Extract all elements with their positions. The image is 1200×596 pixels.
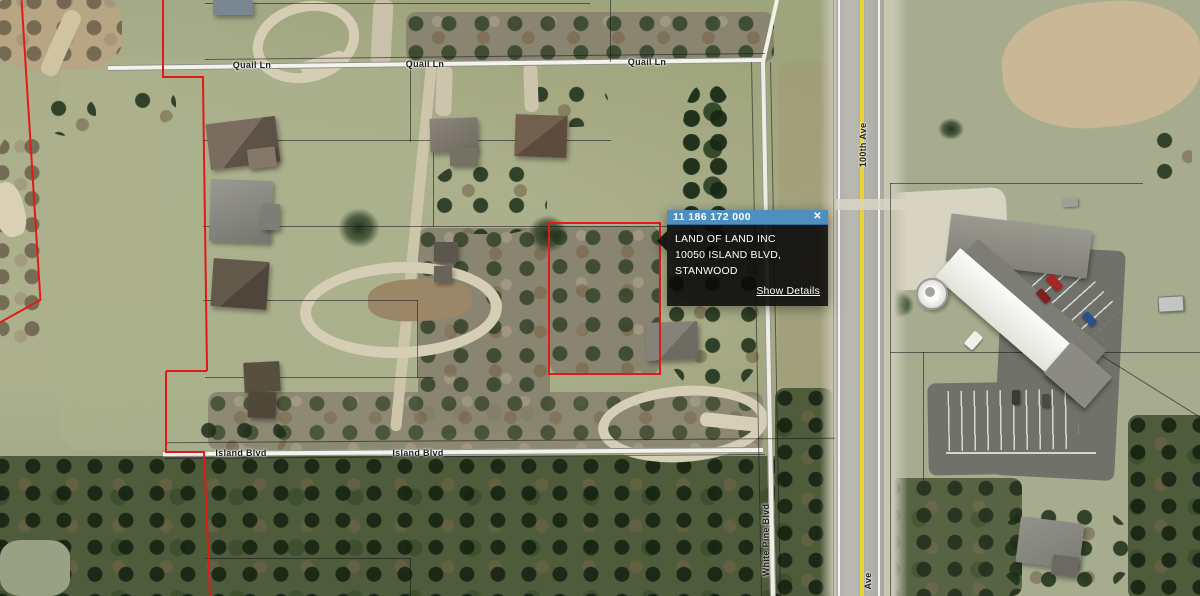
parcel-address: 10050 ISLAND BLVD, STANWOOD [675,247,820,279]
water-tower-cap [925,287,935,297]
driveway-pad [435,66,453,117]
car-gray [1062,197,1079,207]
road-label-island-blvd-2: Island Blvd [392,448,443,458]
close-icon[interactable]: ✕ [813,210,822,224]
parcel-info-popup: 11 186 172 000 ✕ LAND OF LAND INC 10050 … [667,210,828,306]
house-wing-roof [262,204,281,231]
road-label-quail-ln-3: Quail Ln [628,57,666,67]
parcel-owner: LAND OF LAND INC [675,231,820,247]
trees-left [130,88,176,124]
shed-roof [434,242,458,262]
popup-body: LAND OF LAND INC 10050 ISLAND BLVD, STAN… [667,225,828,306]
house-roof [210,258,269,310]
road-label-quail-ln-1: Quail Ln [233,60,271,70]
boundary-red-segment [162,76,204,78]
boundary-red-segment [166,370,207,372]
parking-stripe-line [946,452,1096,454]
parcel-boundary-line [205,558,411,559]
trees-by-driveway [432,162,547,234]
parcel-boundary-line [205,377,434,378]
map-canvas[interactable]: Quail Ln Quail Ln Quail Ln 100th Ave Ave… [0,0,1200,596]
car-dark [1042,394,1050,408]
shed-roof [434,266,452,282]
trees-left [46,96,96,136]
highway-centerline [860,0,864,596]
highway-edge-line-right [878,0,880,596]
road-label-quail-ln-2: Quail Ln [406,59,444,69]
driveway-pad [523,64,539,112]
road-label-100th-ave: 100th Ave [858,123,868,168]
boundary-red-segment [165,451,205,453]
parcel-id-title: 11 186 172 000 [673,210,751,224]
boundary-red-segment [165,371,167,453]
forest-south [0,456,844,596]
tree-canopy [338,208,380,248]
forest-right-edge [1128,415,1200,596]
driveway [370,0,393,64]
house-roof [514,114,567,158]
shed-roof [450,148,478,166]
bare-trees-left-edge [0,135,52,345]
garage-roof [247,146,277,169]
highway-driveway-crossing [836,199,906,210]
parcel-boundary-line [833,0,834,596]
parcel-boundary-line [410,62,411,142]
shed-roof [248,392,277,419]
parcel-boundary-line [923,352,924,480]
trees-top-right [1152,128,1192,188]
highway-edge-line-left [838,0,840,596]
house-roof [243,361,281,393]
clearing [0,540,70,596]
parcel-boundary-line [610,0,611,62]
house-wing-roof [1051,554,1079,577]
boundary-red-segment [162,0,164,78]
parcel-boundary-line [410,558,411,596]
road-label-100th-ave-bottom: Ave [863,572,873,589]
tree-canopy [938,118,964,140]
parcel-boundary-line [417,300,418,378]
building-roof [213,0,253,15]
road-label-island-blvd-1: Island Blvd [215,448,266,458]
show-details-link[interactable]: Show Details [675,283,820,299]
popup-header: 11 186 172 000 ✕ [667,210,828,225]
parcel-boundary-line [433,141,434,227]
car-dark [1012,390,1020,405]
popup-pointer [657,231,667,251]
parcel-boundary-line [890,183,1143,184]
parcel-boundary-line [205,3,590,4]
road-label-white-pine-blvd: White Pine Blvd [761,504,771,577]
selected-parcel-outline[interactable] [548,222,661,375]
parcel-boundary-line [890,183,891,596]
trailer [1158,295,1185,312]
